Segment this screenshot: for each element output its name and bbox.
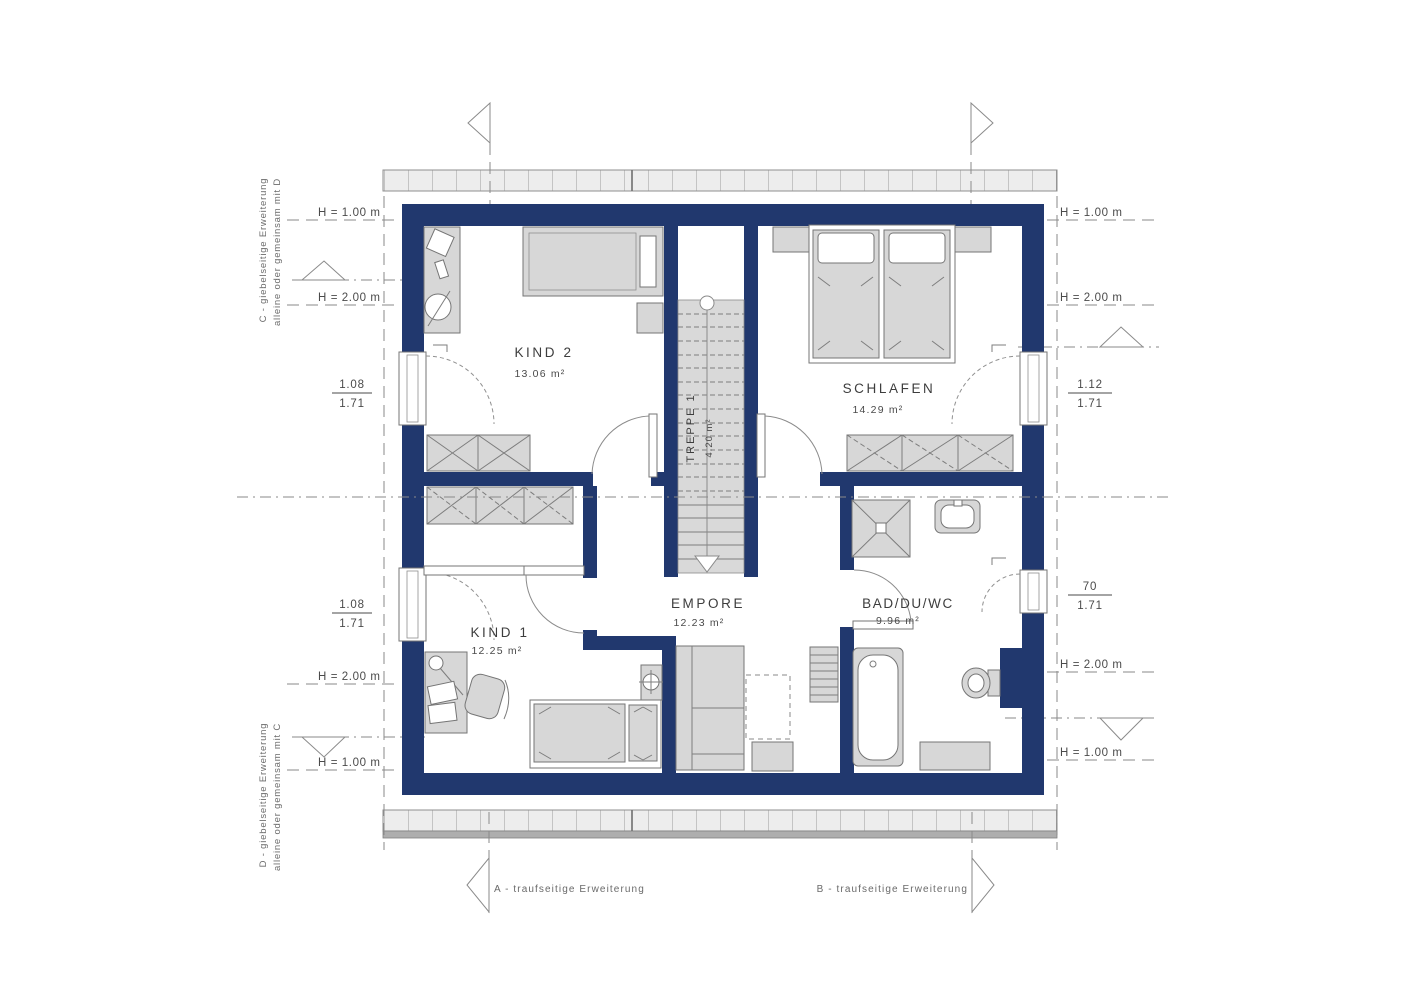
right-h2-bottom-label: H = 2.00 m (1060, 659, 1123, 671)
right-h1-bottom-label: H = 1.00 m (1060, 747, 1123, 759)
bottom-extension-labels: A - traufseitige Erweiterung B - traufse… (494, 884, 968, 895)
wardrobe-kind1 (427, 487, 573, 524)
side-table-kind2 (637, 303, 663, 333)
furnishing-suggestion-dashed (746, 675, 790, 739)
bathtub (853, 648, 903, 766)
door-schlafen (757, 414, 822, 477)
left-h1-bottom-label: H = 1.00 m (318, 757, 381, 769)
room-area-empore: 12.23 m² (673, 617, 724, 629)
shower (852, 500, 910, 557)
wardrobe-schlafen (847, 435, 1013, 471)
left-h1-top-label: H = 1.00 m (318, 207, 381, 219)
right-window2-height: 1.71 (1077, 600, 1103, 612)
side-text-d-line2: alleine oder gemeinsam mit C (272, 723, 283, 871)
roof-line-mark-bad-icon (992, 558, 1006, 565)
window-schlafen (952, 352, 1047, 425)
room-area-kind2: 13.06 m² (514, 368, 565, 380)
room-label-bad: BAD/DU/WC (862, 596, 954, 611)
section-marker-bottom-right-icon (972, 858, 994, 912)
desk-chair-kind2 (425, 294, 451, 320)
roof-slope-triangle-right-top-icon (1100, 327, 1143, 347)
roof-overhang-strip-bottom (383, 810, 1057, 838)
side-text-c-line1: C - giebelseitige Erweiterung (258, 178, 269, 323)
left-window2-height: 1.71 (339, 618, 365, 630)
roof-line-mark-kind2-icon (433, 345, 447, 352)
right-window2-width: 70 (1083, 581, 1097, 593)
room-area-kind1: 12.25 m² (471, 645, 522, 657)
bottom-label-a: A - traufseitige Erweiterung (494, 884, 645, 895)
room-label-empore: EMPORE (671, 596, 745, 611)
furniture-schlafen (773, 225, 1013, 471)
roof-slope-triangle-left-bottom-icon (302, 737, 345, 757)
side-text-d-line1: D - giebelseitige Erweiterung (258, 723, 269, 868)
nightstand-right (955, 227, 991, 252)
furniture-bad (852, 500, 1006, 770)
sofa-empore (676, 646, 744, 770)
room-area-schlafen: 14.29 m² (852, 404, 903, 416)
section-marker-top-right-icon (971, 103, 993, 143)
left-window1-height: 1.71 (339, 398, 365, 410)
toilet (962, 668, 1000, 698)
room-label-kind1: KIND 1 (470, 625, 529, 640)
floor-plan-canvas: TREPPE 1 4.20 m² (0, 0, 1414, 1000)
room-label-treppe: TREPPE 1 (685, 393, 697, 462)
side-extension-texts: C - giebelseitige Erweiterung alleine od… (258, 178, 283, 871)
bed-kind1 (530, 700, 661, 768)
stair-wall-right (744, 226, 758, 577)
right-h2-top-label: H = 2.00 m (1060, 292, 1123, 304)
radiator-empore (810, 647, 838, 702)
furniture-kind1 (425, 487, 661, 768)
plant-table-empore (639, 665, 663, 700)
side-text-c-line2: alleine oder gemeinsam mit D (272, 178, 283, 326)
stair-wall-left (664, 226, 678, 577)
wardrobe-kind2 (427, 435, 530, 471)
staircase: TREPPE 1 4.20 m² (678, 296, 744, 573)
desk-chair-kind1 (463, 672, 507, 721)
right-annotation-texts: H = 1.00 m H = 2.00 m 1.12 1.71 70 1.71 … (1060, 207, 1123, 759)
roof-overhang-strip-top (383, 170, 1057, 191)
roof-line-mark-schlafen-icon (992, 345, 1006, 352)
window-kind2 (399, 352, 494, 425)
section-marker-top-left-icon (468, 103, 490, 143)
stair-start-circle-icon (700, 296, 714, 310)
window-bad (982, 570, 1047, 613)
side-table-empore (752, 742, 793, 771)
section-marker-bottom-left-icon (467, 858, 489, 912)
door-kind2 (592, 414, 657, 477)
left-annotation-texts: H = 1.00 m H = 2.00 m 1.08 1.71 1.08 1.7… (318, 207, 381, 769)
washbasin (935, 500, 980, 533)
right-window1-width: 1.12 (1077, 379, 1103, 391)
right-window1-height: 1.71 (1077, 398, 1103, 410)
room-label-schlafen: SCHLAFEN (843, 381, 936, 396)
roof-slope-triangle-left-top-icon (302, 261, 345, 280)
left-h2-top-label: H = 2.00 m (318, 292, 381, 304)
roof-slope-triangle-right-bottom-icon (1100, 718, 1143, 740)
bottom-label-b: B - traufseitige Erweiterung (817, 884, 968, 895)
left-h2-bottom-label: H = 2.00 m (318, 671, 381, 683)
room-area-bad: 9.96 m² (876, 615, 920, 627)
right-h1-top-label: H = 1.00 m (1060, 207, 1123, 219)
room-label-kind2: KIND 2 (514, 345, 573, 360)
left-window1-width: 1.08 (339, 379, 365, 391)
nightstand-left (773, 227, 809, 252)
room-area-treppe: 4.20 m² (704, 418, 715, 457)
bath-bench (920, 742, 990, 770)
left-window2-width: 1.08 (339, 599, 365, 611)
